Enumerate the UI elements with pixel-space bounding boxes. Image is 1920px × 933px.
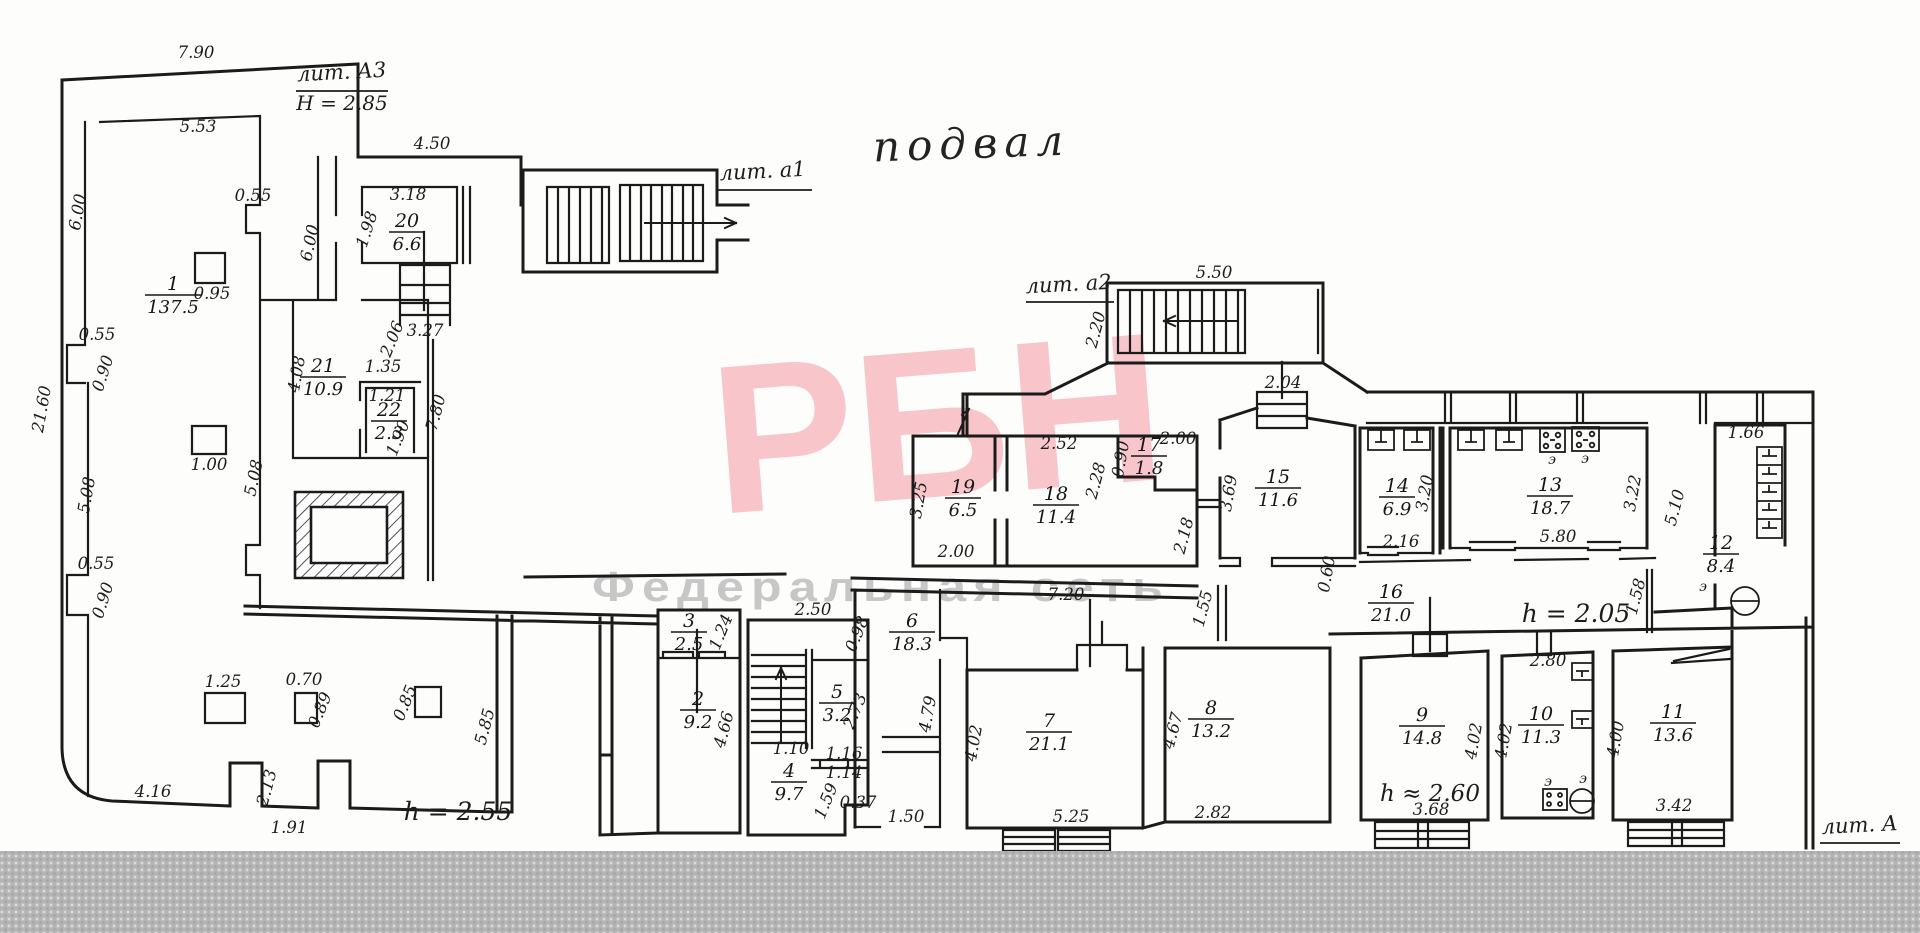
room-area: 14.8 (1402, 728, 1442, 749)
room-area: 137.5 (147, 297, 199, 318)
dimension-label: 1.91 (271, 818, 308, 837)
dimension-label: 4.50 (413, 134, 451, 153)
dimension-label: 1.00 (191, 455, 228, 474)
room-number: 2 (691, 688, 704, 710)
dimension-label: 3.42 (1656, 796, 1693, 815)
dimension-label: 5.53 (180, 117, 217, 136)
scanned-floor-plan-page: РБНФедеральная сеть (0, 0, 1920, 933)
dimension-label: 1.10 (773, 739, 810, 758)
equipment-mark: э (1581, 451, 1589, 467)
dimension-label: 5.80 (1540, 527, 1577, 546)
room-area: 1.8 (1135, 458, 1164, 479)
dimension-label: h ≈ 2.60 (1380, 781, 1480, 807)
dimension-label: 0.37 (840, 793, 877, 812)
dimension-label: 7.90 (178, 43, 215, 62)
room-number: 6 (906, 610, 918, 632)
room-area: 18.7 (1530, 498, 1571, 519)
room-area: 18.3 (892, 634, 932, 655)
room-area: 21.1 (1028, 734, 1069, 755)
room-number: 19 (951, 476, 975, 498)
room-number: 21 (310, 355, 335, 377)
room-number: 8 (1205, 697, 1217, 719)
dimension-label: 1.50 (888, 807, 925, 826)
room-number: 7 (1043, 710, 1056, 732)
room-number: 18 (1044, 483, 1068, 505)
dimension-label: h = 2.05 (1522, 599, 1631, 628)
dimension-label: 1.21 (369, 386, 406, 405)
equipment-mark: э (1699, 579, 1707, 595)
room-area: 11.3 (1521, 727, 1561, 748)
room-number: 17 (1137, 434, 1162, 456)
dimension-label: 3.18 (390, 185, 427, 204)
room-area: 11.6 (1258, 490, 1298, 511)
room-number: 11 (1661, 701, 1685, 723)
dimension-label: 2.52 (1040, 434, 1078, 453)
dimension-label: 0.55 (235, 186, 272, 205)
room-area: 8.4 (1707, 556, 1736, 577)
dimension-label: 0.70 (286, 670, 323, 689)
room-area: 21.0 (1370, 605, 1411, 626)
dimension-label: 1.66 (1728, 423, 1765, 442)
dimension-label: 4.16 (134, 782, 172, 801)
room-number: 4 (782, 760, 795, 782)
litera-text: лит. а2 (1025, 270, 1112, 298)
room-area: 10.9 (303, 379, 343, 400)
room-number: 9 (1416, 704, 1428, 726)
room-area: 6.9 (1383, 499, 1412, 520)
dimension-label: 3.27 (407, 321, 444, 340)
room-area: 6.6 (393, 234, 422, 255)
plan-title: подвал (872, 116, 1071, 172)
equipment-mark: э (1548, 452, 1556, 468)
dimension-label: 7.20 (1048, 585, 1085, 604)
room-number: 20 (394, 210, 419, 232)
room-number: 1 (167, 273, 179, 295)
dimension-label: 2.50 (794, 600, 832, 619)
equipment-mark: э (1579, 771, 1587, 787)
dimension-label: 2.16 (1382, 532, 1420, 551)
room-number: 16 (1379, 581, 1403, 603)
dimension-label: 2.82 (1194, 803, 1232, 822)
dimension-label: 5.50 (1196, 263, 1233, 282)
litera-text: лит. А3 (296, 58, 387, 87)
room-number: 10 (1529, 703, 1553, 725)
dimension-label: 0.55 (79, 325, 116, 344)
room-number: 15 (1266, 466, 1290, 488)
plan-title-layer: подвал (872, 116, 1071, 172)
room-area: 2.5 (674, 634, 704, 655)
dimension-label: 2.80 (1529, 651, 1567, 670)
dimension-label: 5.25 (1053, 807, 1090, 826)
dimension-label: 1.35 (365, 357, 402, 376)
dimension-label: 2.00 (1159, 429, 1197, 448)
dimension-label: 1.14 (826, 763, 863, 782)
litera-text: лит. а1 (719, 157, 806, 185)
room-number: 12 (1709, 532, 1733, 554)
litera-text: лит. А (1821, 811, 1898, 839)
dimension-label: 2.00 (937, 542, 975, 561)
dimension-label: 0.95 (194, 284, 231, 303)
dimension-label: 2.04 (1264, 373, 1302, 392)
litera-height-note: Н = 2.85 (295, 91, 387, 115)
dimension-label: h = 2.55 (404, 797, 513, 826)
room-number: 5 (831, 681, 843, 703)
room-area: 6.5 (949, 500, 978, 521)
room-area: 13.2 (1191, 721, 1231, 742)
room-number: 14 (1385, 475, 1409, 497)
dimension-label: 1.25 (205, 672, 242, 691)
room-area: 13.6 (1653, 725, 1693, 746)
room-area: 9.7 (775, 784, 804, 805)
room-area: 9.2 (684, 712, 713, 733)
scanner-halftone-band (0, 851, 1920, 933)
room-area: 11.4 (1036, 507, 1076, 528)
room-number: 13 (1538, 474, 1562, 496)
room-number: 3 (683, 610, 695, 632)
equipment-mark: э (1544, 774, 1552, 790)
dimension-label: 1.16 (826, 744, 863, 763)
floor-plan-svg: РБНФедеральная сеть (0, 0, 1920, 933)
dimension-label: 0.55 (78, 554, 115, 573)
